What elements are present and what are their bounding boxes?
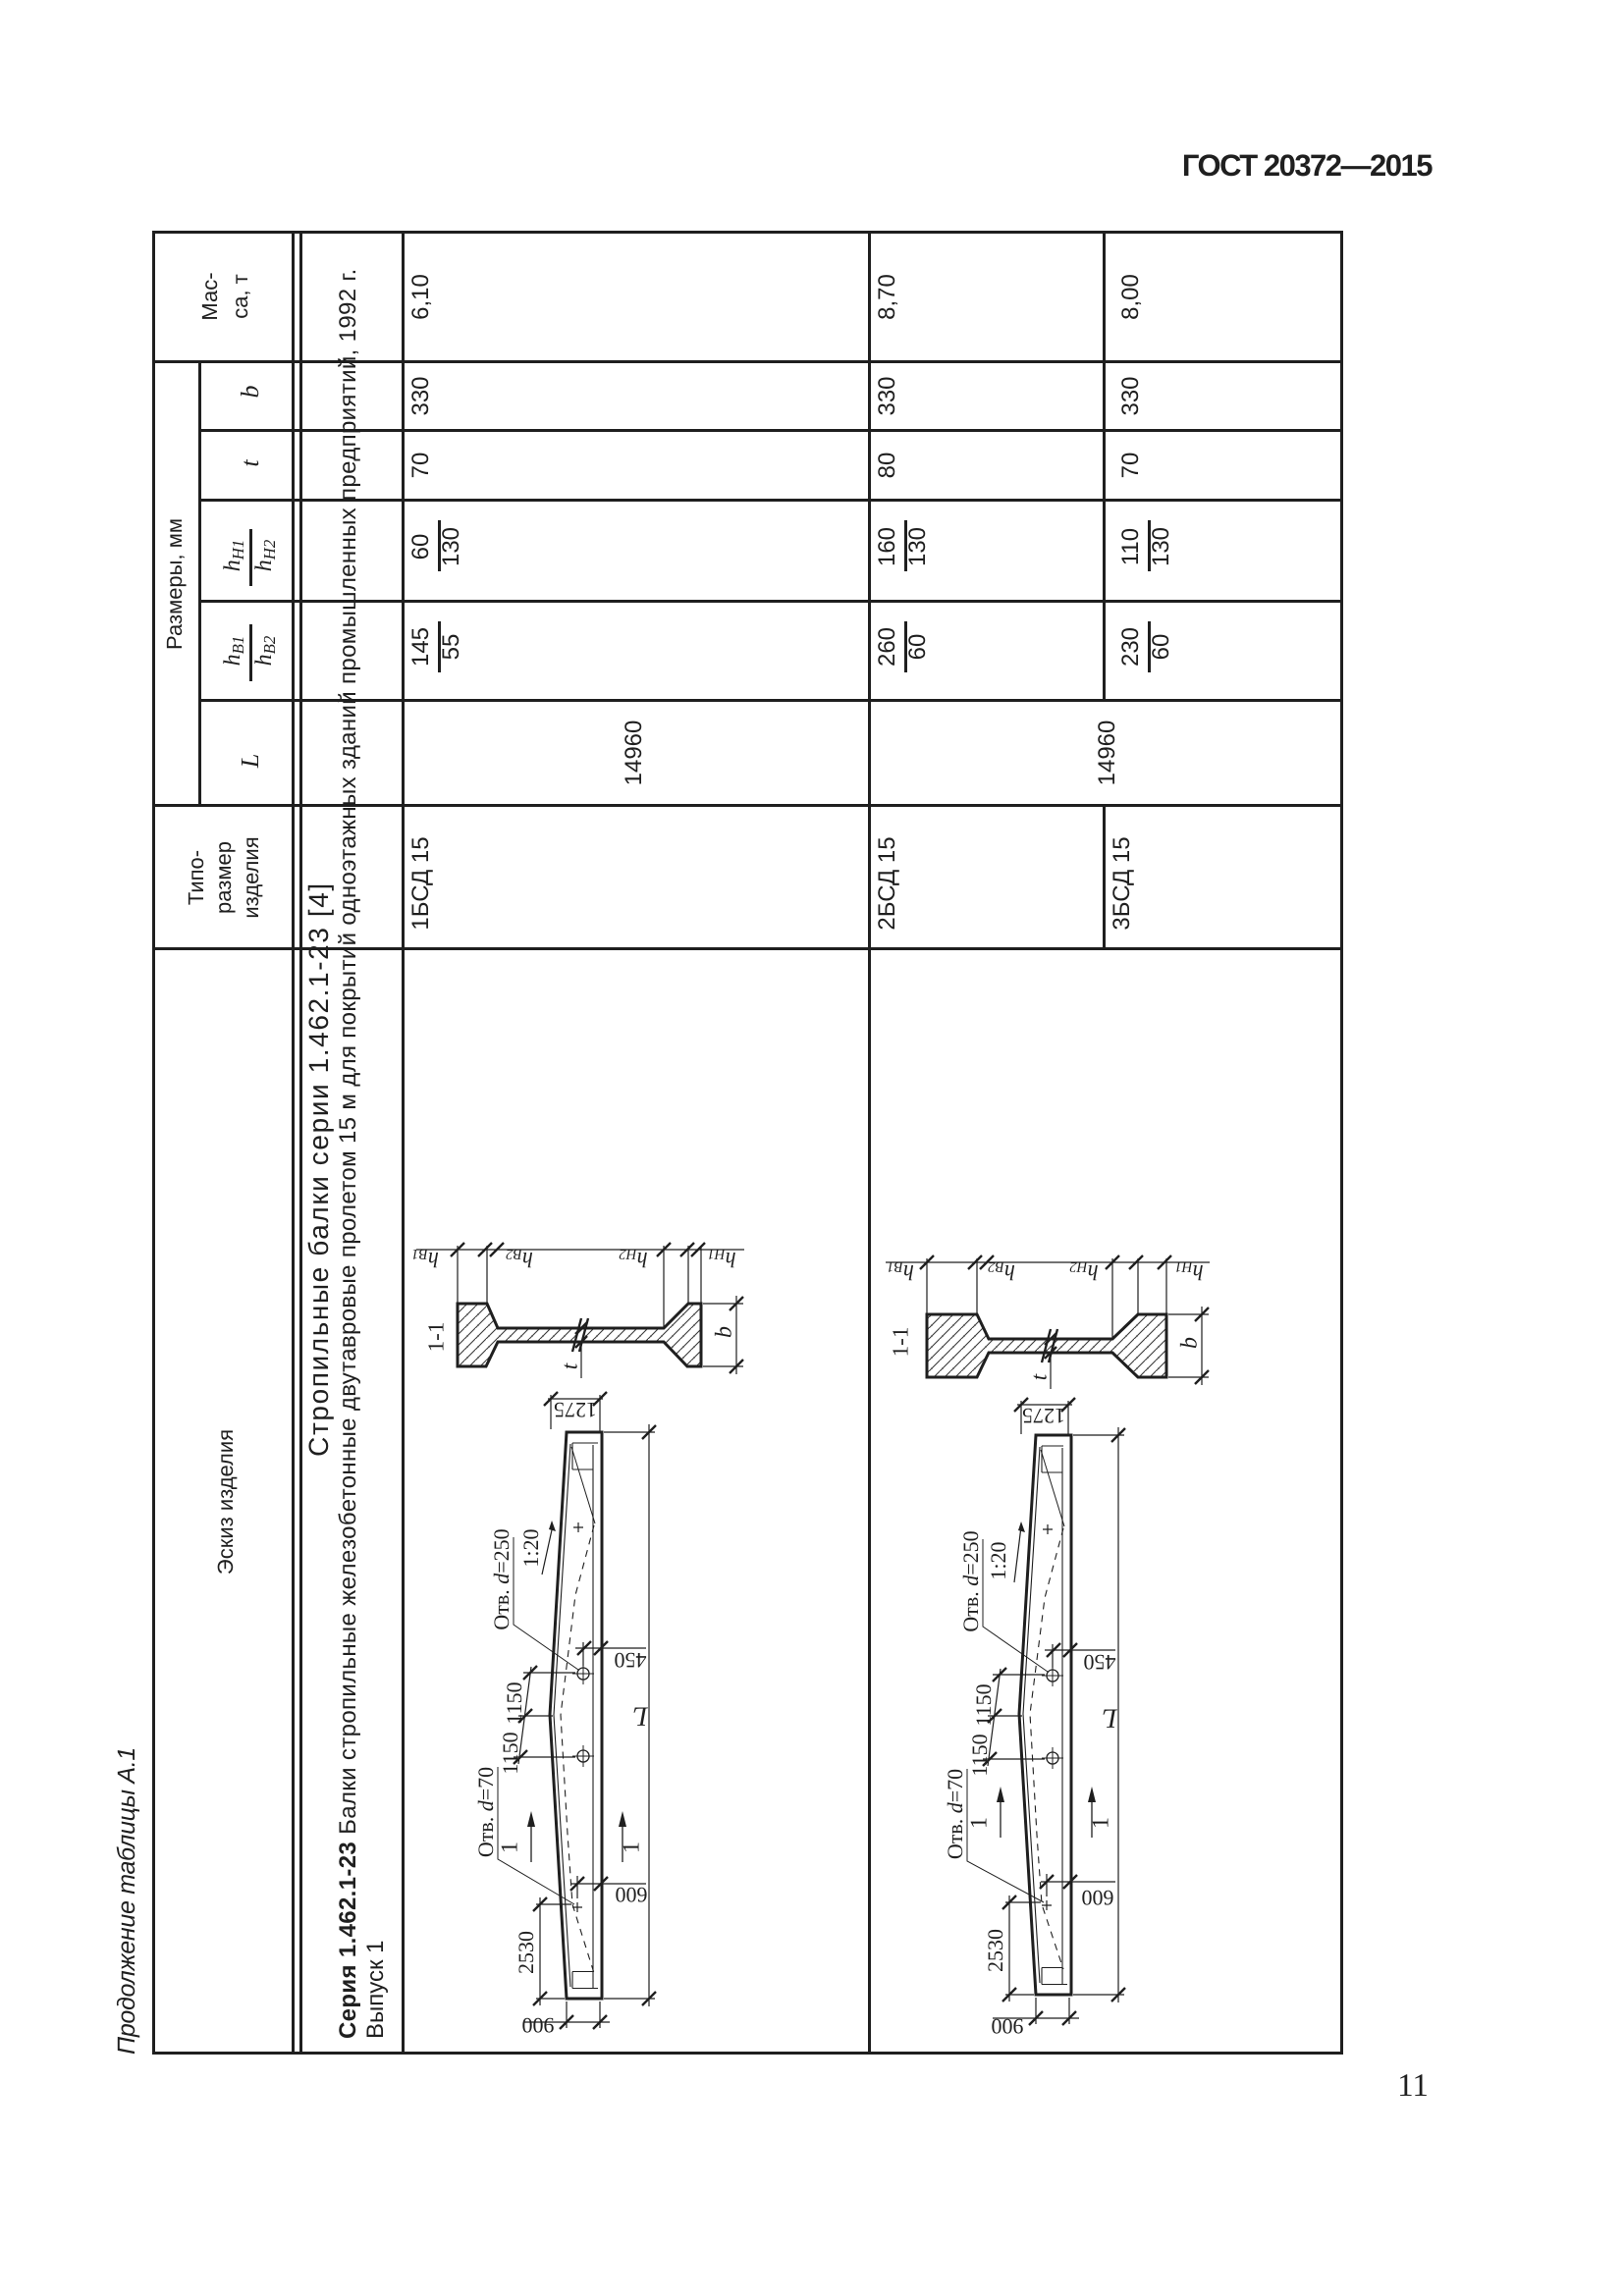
svg-text:hН2: hН2 bbox=[619, 1246, 648, 1272]
svg-text:1275: 1275 bbox=[554, 1398, 597, 1422]
svg-text:1:20: 1:20 bbox=[518, 1528, 543, 1567]
svg-text:hН1: hН1 bbox=[1174, 1258, 1203, 1285]
svg-text:1150: 1150 bbox=[498, 1732, 522, 1774]
svg-text:hВ1: hВ1 bbox=[411, 1246, 439, 1272]
svg-text:1: 1 bbox=[1089, 1817, 1114, 1829]
svg-text:1-1: 1-1 bbox=[888, 1327, 912, 1358]
svg-text:b: b bbox=[1177, 1337, 1203, 1349]
svg-text:Отв. d=70: Отв. d=70 bbox=[473, 1767, 498, 1857]
svg-text:b: b bbox=[712, 1326, 737, 1338]
svg-text:900: 900 bbox=[522, 2013, 555, 2038]
svg-text:L: L bbox=[1102, 1703, 1118, 1734]
svg-text:1150: 1150 bbox=[971, 1683, 996, 1726]
svg-text:hВ2: hВ2 bbox=[506, 1246, 533, 1272]
svg-text:hН1: hН1 bbox=[707, 1246, 735, 1272]
svg-text:2530: 2530 bbox=[983, 1929, 1007, 1972]
svg-text:600: 600 bbox=[1082, 1886, 1114, 1910]
svg-text:1-1: 1-1 bbox=[423, 1322, 448, 1353]
svg-text:hН2: hН2 bbox=[1069, 1258, 1099, 1285]
svg-text:L: L bbox=[632, 1701, 649, 1732]
svg-text:600: 600 bbox=[616, 1883, 648, 1907]
svg-text:450: 450 bbox=[615, 1648, 647, 1673]
svg-text:450: 450 bbox=[1084, 1650, 1116, 1675]
svg-text:1150: 1150 bbox=[502, 1682, 526, 1724]
svg-text:t: t bbox=[557, 1362, 581, 1369]
svg-text:2530: 2530 bbox=[514, 1931, 538, 1974]
svg-text:1: 1 bbox=[498, 1842, 523, 1853]
svg-text:1: 1 bbox=[620, 1842, 645, 1853]
svg-text:t: t bbox=[1026, 1373, 1051, 1380]
svg-text:1: 1 bbox=[967, 1817, 993, 1829]
svg-text:Отв. d=250: Отв. d=250 bbox=[958, 1530, 983, 1631]
svg-text:Отв. d=70: Отв. d=70 bbox=[943, 1769, 967, 1859]
svg-text:Отв. d=250: Отв. d=250 bbox=[489, 1528, 514, 1629]
svg-text:1:20: 1:20 bbox=[986, 1541, 1010, 1579]
svg-text:900: 900 bbox=[992, 2014, 1024, 2039]
svg-text:1150: 1150 bbox=[967, 1734, 992, 1776]
svg-text:hВ2: hВ2 bbox=[988, 1258, 1015, 1285]
svg-text:1275: 1275 bbox=[1022, 1404, 1065, 1428]
svg-text:hВ1: hВ1 bbox=[887, 1258, 914, 1285]
